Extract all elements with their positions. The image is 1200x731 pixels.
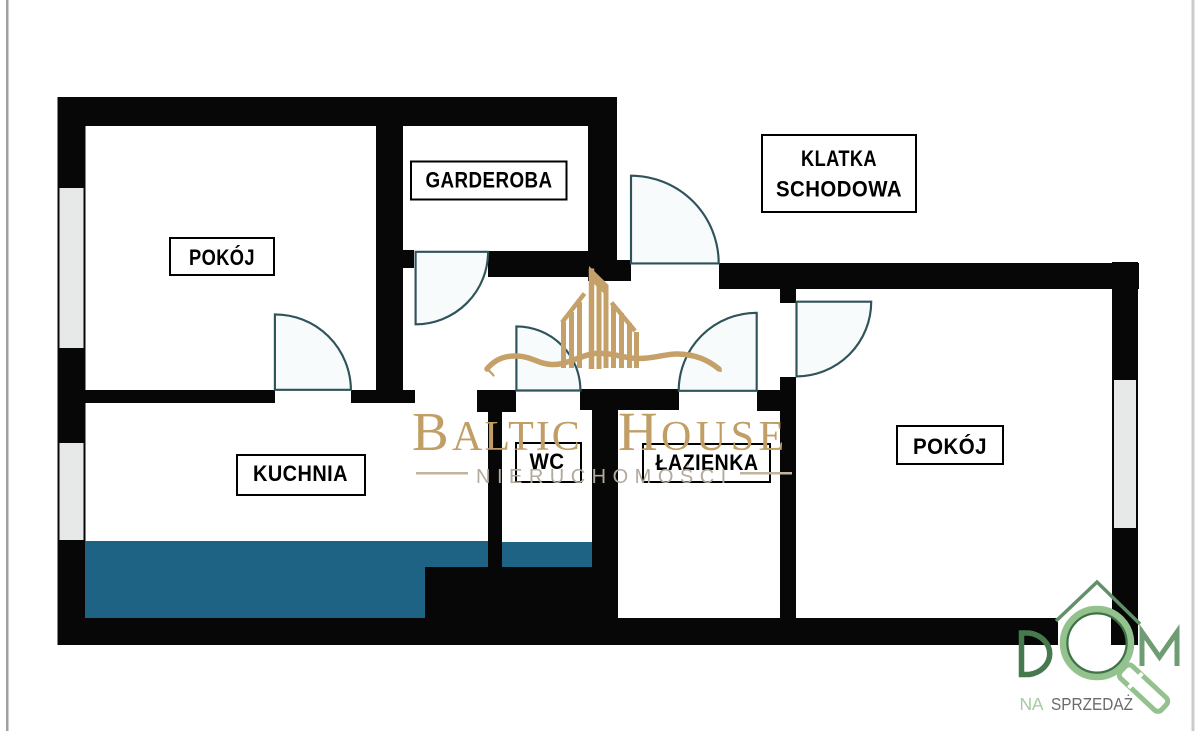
svg-text:POKÓJ: POKÓJ [189,245,255,270]
svg-text:KLATKA: KLATKA [801,146,877,171]
svg-text:POKÓJ: POKÓJ [913,434,987,459]
svg-text:ALTIC: ALTIC [452,414,582,460]
svg-text:OUSE: OUSE [661,414,789,460]
svg-text:NA: NA [1020,694,1044,714]
svg-text:H: H [618,401,658,462]
svg-text:B: B [412,401,449,462]
svg-text:SPRZEDAŻ: SPRZEDAŻ [1051,694,1133,714]
svg-text:NIERUCHOMOŚCI: NIERUCHOMOŚCI [476,464,733,488]
svg-text:SCHODOWA: SCHODOWA [776,177,902,202]
svg-text:GARDEROBA: GARDEROBA [426,168,553,193]
svg-text:KUCHNIA: KUCHNIA [253,461,348,486]
